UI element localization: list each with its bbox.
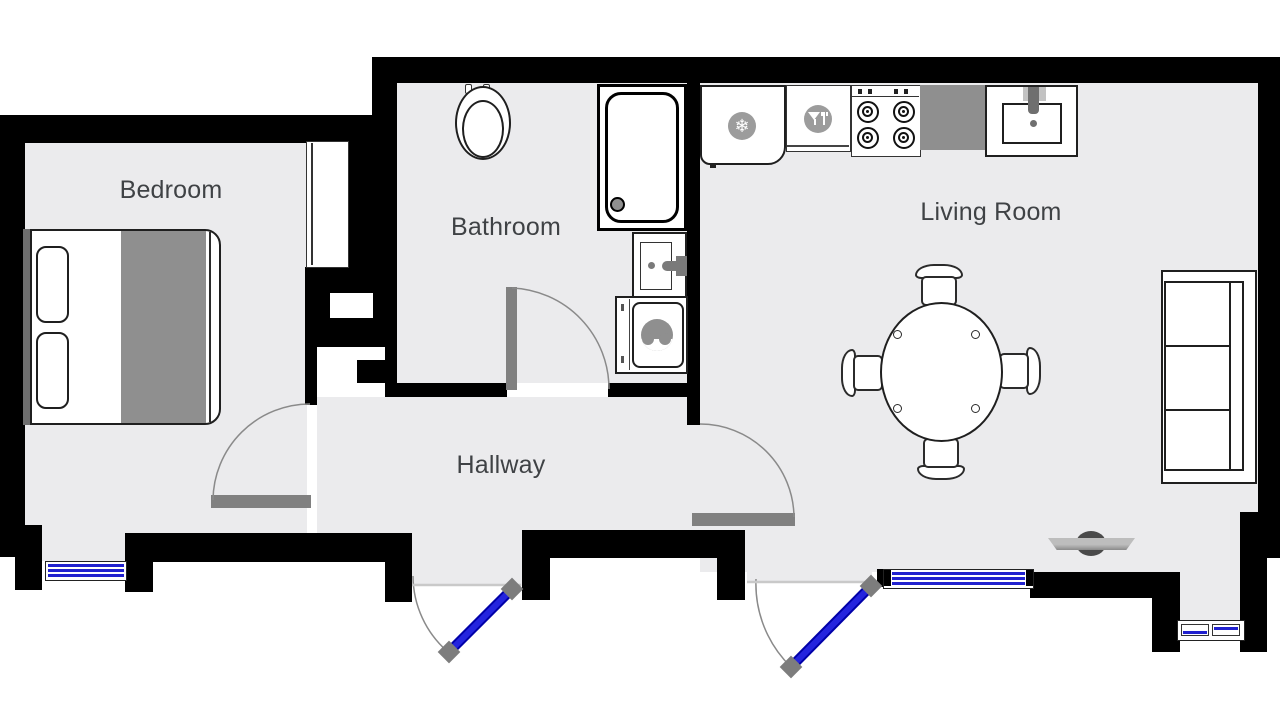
chair-seat: [923, 438, 959, 468]
stove-knob: [868, 89, 872, 94]
table-bolt: [971, 330, 980, 339]
living-room-label: Living Room: [905, 198, 1077, 227]
wall-segment: [1258, 57, 1280, 558]
sink-faucet-spout: [662, 261, 678, 271]
bed-foot-line: [209, 232, 211, 422]
wall-segment: [15, 557, 42, 590]
double-bed: [20, 226, 225, 428]
wall-niche: [330, 293, 373, 318]
burner: [893, 127, 915, 149]
window-stripe: [892, 582, 1025, 585]
kitchen-faucet: [1028, 87, 1039, 114]
tv: [1046, 531, 1138, 557]
burner: [857, 101, 879, 123]
bed-blanket: [121, 231, 206, 423]
snowflake-icon: ❄: [728, 112, 756, 140]
bedroom-label: Bedroom: [85, 176, 257, 205]
shower: [597, 84, 687, 231]
window-stripe: [48, 574, 124, 577]
washer-wave: [642, 333, 654, 345]
washing-machine: [615, 296, 688, 374]
burner: [857, 127, 879, 149]
washer-control-strip: [618, 299, 630, 370]
wall-segment: [372, 57, 1280, 83]
shower-drain: [610, 197, 625, 212]
toilet: [454, 84, 512, 162]
bedroom-window: [45, 561, 127, 581]
kitchen-counter: [920, 85, 985, 150]
window-stripe: [48, 564, 124, 567]
burner: [893, 101, 915, 123]
washer-wave: [659, 333, 671, 345]
window-stripe: [48, 569, 124, 572]
window-stripe: [892, 572, 1025, 575]
floor-entrance: [412, 530, 522, 586]
pillow: [36, 246, 69, 323]
stove: [851, 85, 921, 157]
window-stripe: [1183, 631, 1207, 634]
window-pane: [1181, 624, 1209, 636]
wall-segment: [357, 360, 388, 383]
window-cap: [884, 570, 891, 586]
wall-segment: [385, 562, 412, 602]
kitchen-drain-dot: [1030, 120, 1037, 127]
martini-stem: [814, 119, 816, 125]
window-pane: [1212, 624, 1240, 636]
living-room-window: [883, 569, 1034, 589]
pillow: [36, 332, 69, 409]
wall-segment: [125, 533, 412, 562]
stove-knob: [858, 89, 862, 94]
sofa-cushion: [1164, 345, 1232, 411]
window-cap: [1026, 570, 1033, 586]
toilet-bowl: [462, 100, 504, 158]
stove-knob: [904, 89, 908, 94]
kitchen-sink: [985, 85, 1078, 157]
bedroom-door-threshold: [211, 495, 311, 508]
washer-knob: [621, 356, 624, 363]
wall-segment: [0, 115, 372, 143]
chair-seat: [853, 355, 883, 391]
sofa-backrest: [1229, 281, 1244, 471]
wall-segment: [1030, 572, 1180, 598]
alcove-window: [1177, 620, 1245, 641]
sink-drain-dot: [648, 262, 655, 269]
wardrobe: [306, 141, 349, 268]
sofa-cushion: [1164, 409, 1232, 471]
tv-screen: [1048, 538, 1135, 550]
bathroom-sink: [632, 232, 687, 299]
wall-segment: [305, 347, 317, 405]
window-stripe: [892, 577, 1025, 580]
wall-segment: [687, 57, 700, 425]
floor-living-room: [747, 558, 872, 583]
table-bolt: [893, 404, 902, 413]
fridge-foot: [710, 163, 716, 168]
table-bolt: [971, 404, 980, 413]
wardrobe-door-line: [311, 143, 313, 265]
bathroom-label: Bathroom: [420, 213, 592, 242]
wall-segment: [1152, 598, 1180, 652]
bathroom-door-leaf: [506, 287, 517, 390]
floor-plan: ❄: [0, 0, 1280, 720]
fork-tine: [821, 112, 823, 116]
fork-tine: [826, 112, 828, 116]
stove-knob: [894, 89, 898, 94]
window-stripe: [1214, 627, 1238, 630]
dining-table: [880, 302, 1003, 442]
table-bolt: [893, 330, 902, 339]
dishwasher-base-line: [787, 145, 849, 147]
sofa: [1161, 270, 1257, 484]
washer-knob: [621, 304, 624, 311]
hallway-label: Hallway: [415, 451, 587, 480]
living-room-door-threshold: [692, 513, 795, 526]
floor-alcove: [1180, 512, 1240, 623]
wall-segment: [125, 533, 153, 592]
wall-segment: [0, 525, 42, 557]
wall-segment: [385, 383, 507, 397]
sofa-cushion: [1164, 281, 1232, 347]
washer-door: [641, 319, 673, 351]
wall-segment: [1240, 512, 1280, 558]
wall-segment: [522, 530, 745, 558]
wall-segment: [717, 558, 745, 600]
stove-knob-strip: [852, 86, 919, 97]
dining-icon: [804, 105, 832, 133]
chair-seat: [999, 353, 1029, 389]
wall-segment: [522, 558, 550, 600]
